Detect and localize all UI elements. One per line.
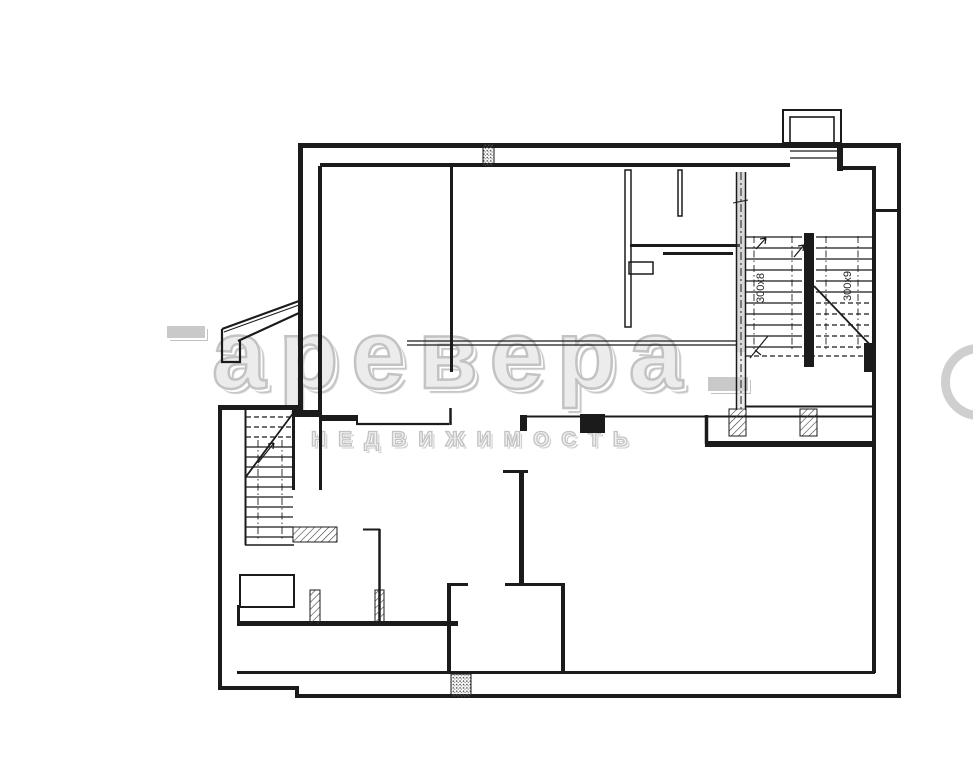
floorplan-scan: аревера НЕДВИЖИМОСТЬ bbox=[0, 0, 973, 768]
stairwell-top-right: 300x8 300x9 bbox=[746, 233, 875, 372]
stair-flight-label-left: 300x8 bbox=[755, 273, 767, 303]
stair-direction-arrow bbox=[794, 245, 804, 257]
stair-direction-arrow bbox=[756, 238, 766, 249]
interior-walls bbox=[240, 167, 875, 672]
stair-treads-solid bbox=[245, 447, 294, 545]
floorplan-drawing: 300x8 300x9 bbox=[0, 0, 973, 768]
stair-wall-stub bbox=[864, 343, 872, 372]
stair-treads-upper-dashed bbox=[246, 417, 293, 437]
dashed-wall bbox=[733, 172, 748, 410]
stippled-piers bbox=[451, 144, 494, 697]
stair-flight-label-right: 300x9 bbox=[842, 271, 854, 301]
stair-center-wall bbox=[804, 233, 814, 367]
stair-direction-arrow bbox=[258, 443, 274, 463]
entrance-canopy bbox=[222, 301, 299, 362]
stairwell-left bbox=[245, 408, 297, 545]
entrance-porch bbox=[783, 110, 841, 158]
